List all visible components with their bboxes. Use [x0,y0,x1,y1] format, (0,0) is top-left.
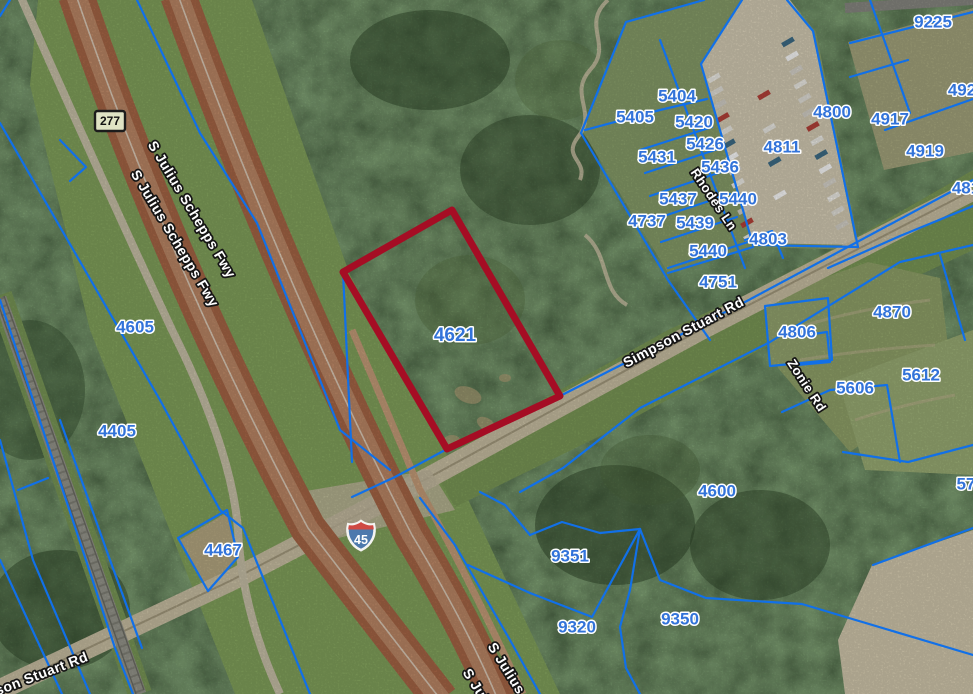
parcel-label-4751: 4751 [699,272,737,291]
parcel-label-481: 481 [952,178,973,197]
parcel-label-5436: 5436 [701,157,739,176]
interstate-number: 45 [354,533,368,547]
map-canvas[interactable]: S Julius Schepps FwyS Julius Schepps Fwy… [0,0,973,694]
parcel-label-5439: 5439 [676,213,714,232]
parcel-label-4917: 4917 [871,109,909,128]
parcel-label-9320: 9320 [558,617,596,636]
parcel-label-5404: 5404 [658,86,696,105]
state-route-number: 277 [100,114,120,128]
parcel-label-9350: 9350 [661,609,699,628]
parcel-label-4919: 4919 [906,141,944,160]
parcel-label-5420: 5420 [675,112,713,131]
state-route-277-shield: 277 [95,111,125,131]
parcel-label-4803: 4803 [749,229,787,248]
parcel-label-4605: 4605 [116,317,154,336]
parcel-label-9225: 9225 [914,12,952,31]
aerial-map-svg: S Julius Schepps FwyS Julius Schepps Fwy… [0,0,973,694]
parcel-label-4467: 4467 [204,540,242,559]
parcel-label-4806: 4806 [778,322,816,341]
parcel-label-4600: 4600 [698,481,736,500]
parcel-label-4870: 4870 [873,302,911,321]
parcel-label-5440: 5440 [689,241,727,260]
parcel-label-492: 492 [948,80,973,99]
parcel-label-4621: 4621 [434,325,477,346]
parcel-label-9351: 9351 [551,546,589,565]
parcel-label-5437: 5437 [659,189,697,208]
parcel-label-4800: 4800 [813,102,851,121]
parcel-label-5431: 5431 [638,147,676,166]
parcel-label-5612: 5612 [902,365,940,384]
parcel-label-5440: 5440 [719,189,757,208]
parcel-label-5405: 5405 [616,107,654,126]
parcel-label-5606: 5606 [836,378,874,397]
parcel-label-5426: 5426 [686,134,724,153]
parcel-label-4811: 4811 [764,137,801,156]
parcel-label-57: 57 [957,474,973,493]
parcel-label-4405: 4405 [98,421,136,440]
parcel-label-4737: 4737 [628,211,666,230]
